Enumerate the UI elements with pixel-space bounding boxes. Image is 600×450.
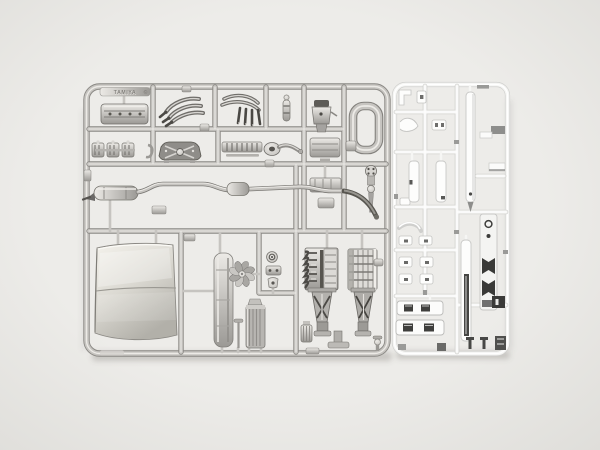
side-sill-part xyxy=(214,253,233,347)
bumper-part-1 xyxy=(397,301,443,315)
long-trim-part-2 xyxy=(461,240,471,341)
valve-cover-part xyxy=(101,104,148,124)
logo-copyright: © xyxy=(144,89,148,96)
bumper-part-2 xyxy=(396,320,444,335)
pulley-part xyxy=(267,252,278,263)
molded-label-plate xyxy=(100,351,124,356)
tamiya-logo-plate: TAMIYA TAMIYA © xyxy=(100,88,150,97)
photo-of-chrome-model-kit-sprues: TAMIYA TAMIYA © xyxy=(0,0,600,450)
tappet-strip-part xyxy=(222,142,262,157)
dark-square-slit xyxy=(496,299,499,305)
dark-block-part xyxy=(437,343,446,351)
intake-plate-x-part xyxy=(159,142,201,163)
emblem-x-part xyxy=(480,214,497,310)
resonator-part xyxy=(227,183,249,196)
photo-canvas: TAMIYA TAMIYA © xyxy=(0,0,600,450)
carb-top-parts xyxy=(92,140,135,157)
hood-panel-part xyxy=(95,243,177,339)
long-trim-part-1 xyxy=(466,92,475,212)
logo-text: TAMIYA xyxy=(114,90,137,96)
shock-damper-part xyxy=(283,95,290,121)
oil-cooler-part xyxy=(246,299,265,348)
